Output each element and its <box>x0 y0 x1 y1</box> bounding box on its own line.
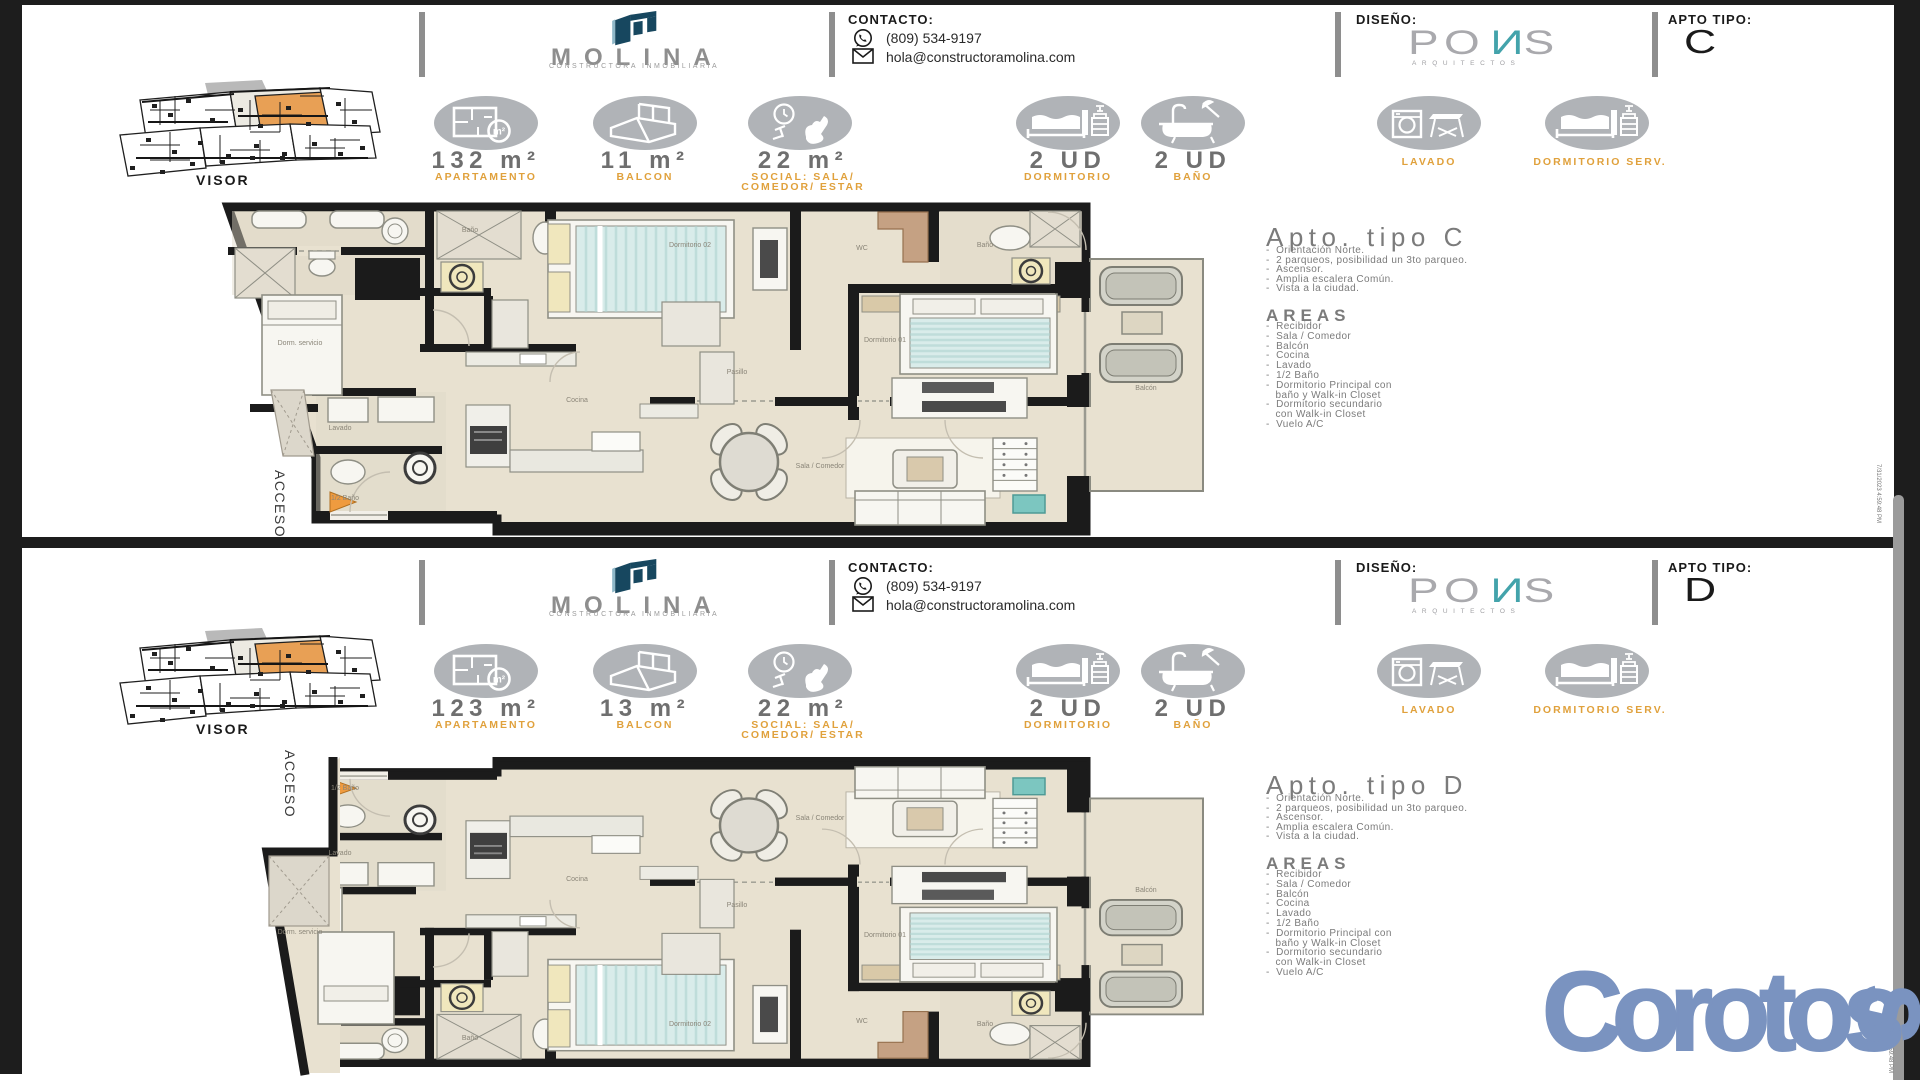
svg-text:WC: WC <box>856 1018 868 1025</box>
svg-text:Pasillo: Pasillo <box>727 369 748 376</box>
svg-text:Dormitorio 02: Dormitorio 02 <box>669 1021 711 1028</box>
svg-text:Balcón: Balcón <box>1135 887 1157 894</box>
svg-text:Lavado: Lavado <box>329 425 352 432</box>
svg-text:Dorm. servicio: Dorm. servicio <box>278 929 323 936</box>
svg-text:1/2 Baño: 1/2 Baño <box>331 495 359 502</box>
svg-text:Baño: Baño <box>977 1021 993 1028</box>
svg-text:Cocina: Cocina <box>566 876 588 883</box>
svg-text:Baño: Baño <box>462 227 478 234</box>
svg-text:Sala / Comedor: Sala / Comedor <box>796 463 845 470</box>
svg-text:Balcón: Balcón <box>1135 385 1157 392</box>
svg-text:Lavado: Lavado <box>329 850 352 857</box>
svg-text:Baño: Baño <box>462 1035 478 1042</box>
svg-text:Cocina: Cocina <box>566 397 588 404</box>
svg-text:Dormitorio 01: Dormitorio 01 <box>864 337 906 344</box>
svg-text:Dorm. servicio: Dorm. servicio <box>278 340 323 347</box>
svg-text:Sala / Comedor: Sala / Comedor <box>796 815 845 822</box>
svg-text:Dormitorio 01: Dormitorio 01 <box>864 932 906 939</box>
svg-text:1/2 Baño: 1/2 Baño <box>331 785 359 792</box>
svg-text:Pasillo: Pasillo <box>727 902 748 909</box>
svg-text:Baño: Baño <box>977 242 993 249</box>
svg-text:WC: WC <box>856 245 868 252</box>
svg-text:Dormitorio 02: Dormitorio 02 <box>669 242 711 249</box>
